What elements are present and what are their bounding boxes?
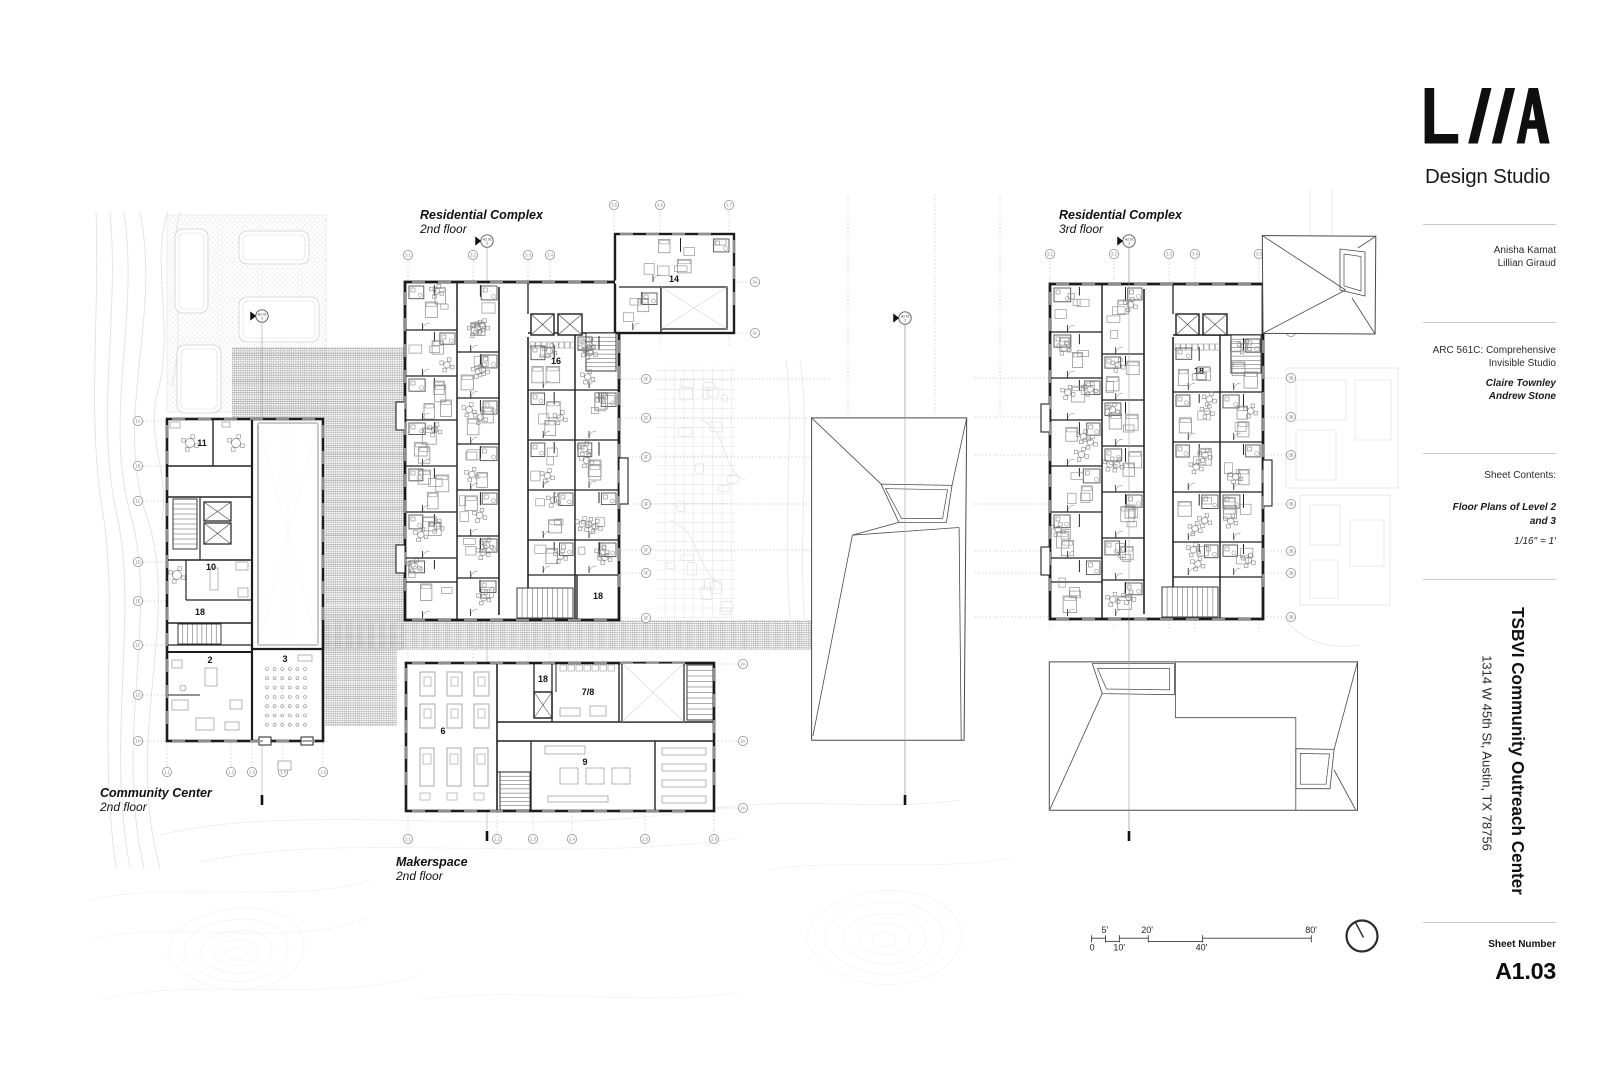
svg-text:3F: 3F <box>644 416 649 421</box>
svg-text:3.3: 3.3 <box>1166 252 1172 257</box>
svg-text:3F: 3F <box>644 548 649 553</box>
svg-text:20': 20' <box>1141 925 1153 935</box>
svg-text:2: 2 <box>261 316 263 320</box>
svg-text:18: 18 <box>1194 366 1204 376</box>
svg-text:2.1: 2.1 <box>405 837 411 842</box>
svg-text:1H: 1H <box>135 739 140 744</box>
svg-text:2nd floor: 2nd floor <box>419 222 468 236</box>
svg-text:1.1: 1.1 <box>164 770 170 775</box>
svg-text:3.3: 3.3 <box>525 253 531 258</box>
svg-text:0: 0 <box>1090 943 1095 953</box>
svg-text:2: 2 <box>207 655 212 665</box>
svg-text:9: 9 <box>582 757 587 767</box>
svg-text:1.3: 1.3 <box>249 770 255 775</box>
svg-text:18: 18 <box>538 674 548 684</box>
svg-text:2nd floor: 2nd floor <box>395 869 444 883</box>
svg-text:10': 10' <box>1113 943 1125 953</box>
svg-text:18: 18 <box>593 591 603 601</box>
svg-text:3.7: 3.7 <box>726 203 732 208</box>
svg-text:3.5: 3.5 <box>1256 252 1262 257</box>
svg-text:18: 18 <box>195 607 205 617</box>
svg-text:1A: 1A <box>135 419 140 424</box>
svg-text:3F: 3F <box>644 571 649 576</box>
svg-text:3.4: 3.4 <box>547 253 553 258</box>
svg-text:3B: 3B <box>1288 502 1293 507</box>
svg-text:2.6: 2.6 <box>711 837 717 842</box>
svg-text:5': 5' <box>1102 925 1109 935</box>
svg-text:2.2: 2.2 <box>494 837 500 842</box>
svg-text:2: 2 <box>486 241 488 245</box>
svg-text:3.6: 3.6 <box>657 203 663 208</box>
svg-text:14: 14 <box>669 274 679 284</box>
svg-text:3.1: 3.1 <box>405 253 411 258</box>
svg-text:Residential Complex: Residential Complex <box>1059 208 1183 222</box>
svg-text:3rd floor: 3rd floor <box>1059 222 1104 236</box>
svg-text:2A: 2A <box>740 662 745 667</box>
svg-text:16: 16 <box>551 356 561 366</box>
svg-text:2A: 2A <box>740 806 745 811</box>
svg-text:3F: 3F <box>644 377 649 382</box>
svg-text:3B: 3B <box>1288 376 1293 381</box>
svg-text:1G: 1G <box>135 693 141 698</box>
svg-text:1.2: 1.2 <box>228 770 234 775</box>
svg-text:1B: 1B <box>135 464 140 469</box>
svg-text:40': 40' <box>1196 943 1208 953</box>
svg-text:2.5: 2.5 <box>642 837 648 842</box>
svg-text:Makerspace: Makerspace <box>396 855 468 869</box>
svg-text:3.2: 3.2 <box>1111 252 1117 257</box>
svg-text:3: 3 <box>282 654 287 664</box>
svg-text:3B: 3B <box>1288 549 1293 554</box>
svg-text:2A: 2A <box>740 739 745 744</box>
svg-text:3.2: 3.2 <box>470 253 476 258</box>
svg-text:3F: 3F <box>644 616 649 621</box>
svg-text:3B: 3B <box>1288 571 1293 576</box>
svg-text:1E: 1E <box>135 599 140 604</box>
svg-text:6: 6 <box>440 726 445 736</box>
svg-text:3B: 3B <box>1288 415 1293 420</box>
svg-text:1F: 1F <box>136 643 141 648</box>
svg-text:11: 11 <box>197 438 207 448</box>
svg-text:3A: 3A <box>752 280 757 285</box>
svg-text:3.5: 3.5 <box>611 203 617 208</box>
svg-text:1C: 1C <box>135 499 140 504</box>
svg-text:2nd floor: 2nd floor <box>99 800 148 814</box>
svg-text:Residential Complex: Residential Complex <box>420 208 544 222</box>
svg-text:3F: 3F <box>644 502 649 507</box>
svg-text:2.3: 2.3 <box>530 837 536 842</box>
svg-text:3B: 3B <box>1288 453 1293 458</box>
svg-text:1.5: 1.5 <box>320 770 326 775</box>
svg-text:7/8: 7/8 <box>582 687 595 697</box>
svg-text:3A: 3A <box>752 331 757 336</box>
svg-text:2: 2 <box>904 318 906 322</box>
svg-text:10: 10 <box>206 562 216 572</box>
svg-text:2: 2 <box>1128 241 1130 245</box>
svg-text:3B: 3B <box>1288 615 1293 620</box>
svg-text:80': 80' <box>1305 925 1317 935</box>
svg-text:2.4: 2.4 <box>569 837 575 842</box>
svg-text:Community Center: Community Center <box>100 786 213 800</box>
svg-text:3.1: 3.1 <box>1047 252 1053 257</box>
svg-text:1D: 1D <box>135 560 140 565</box>
svg-text:3F: 3F <box>644 455 649 460</box>
svg-text:3.4: 3.4 <box>1192 252 1198 257</box>
